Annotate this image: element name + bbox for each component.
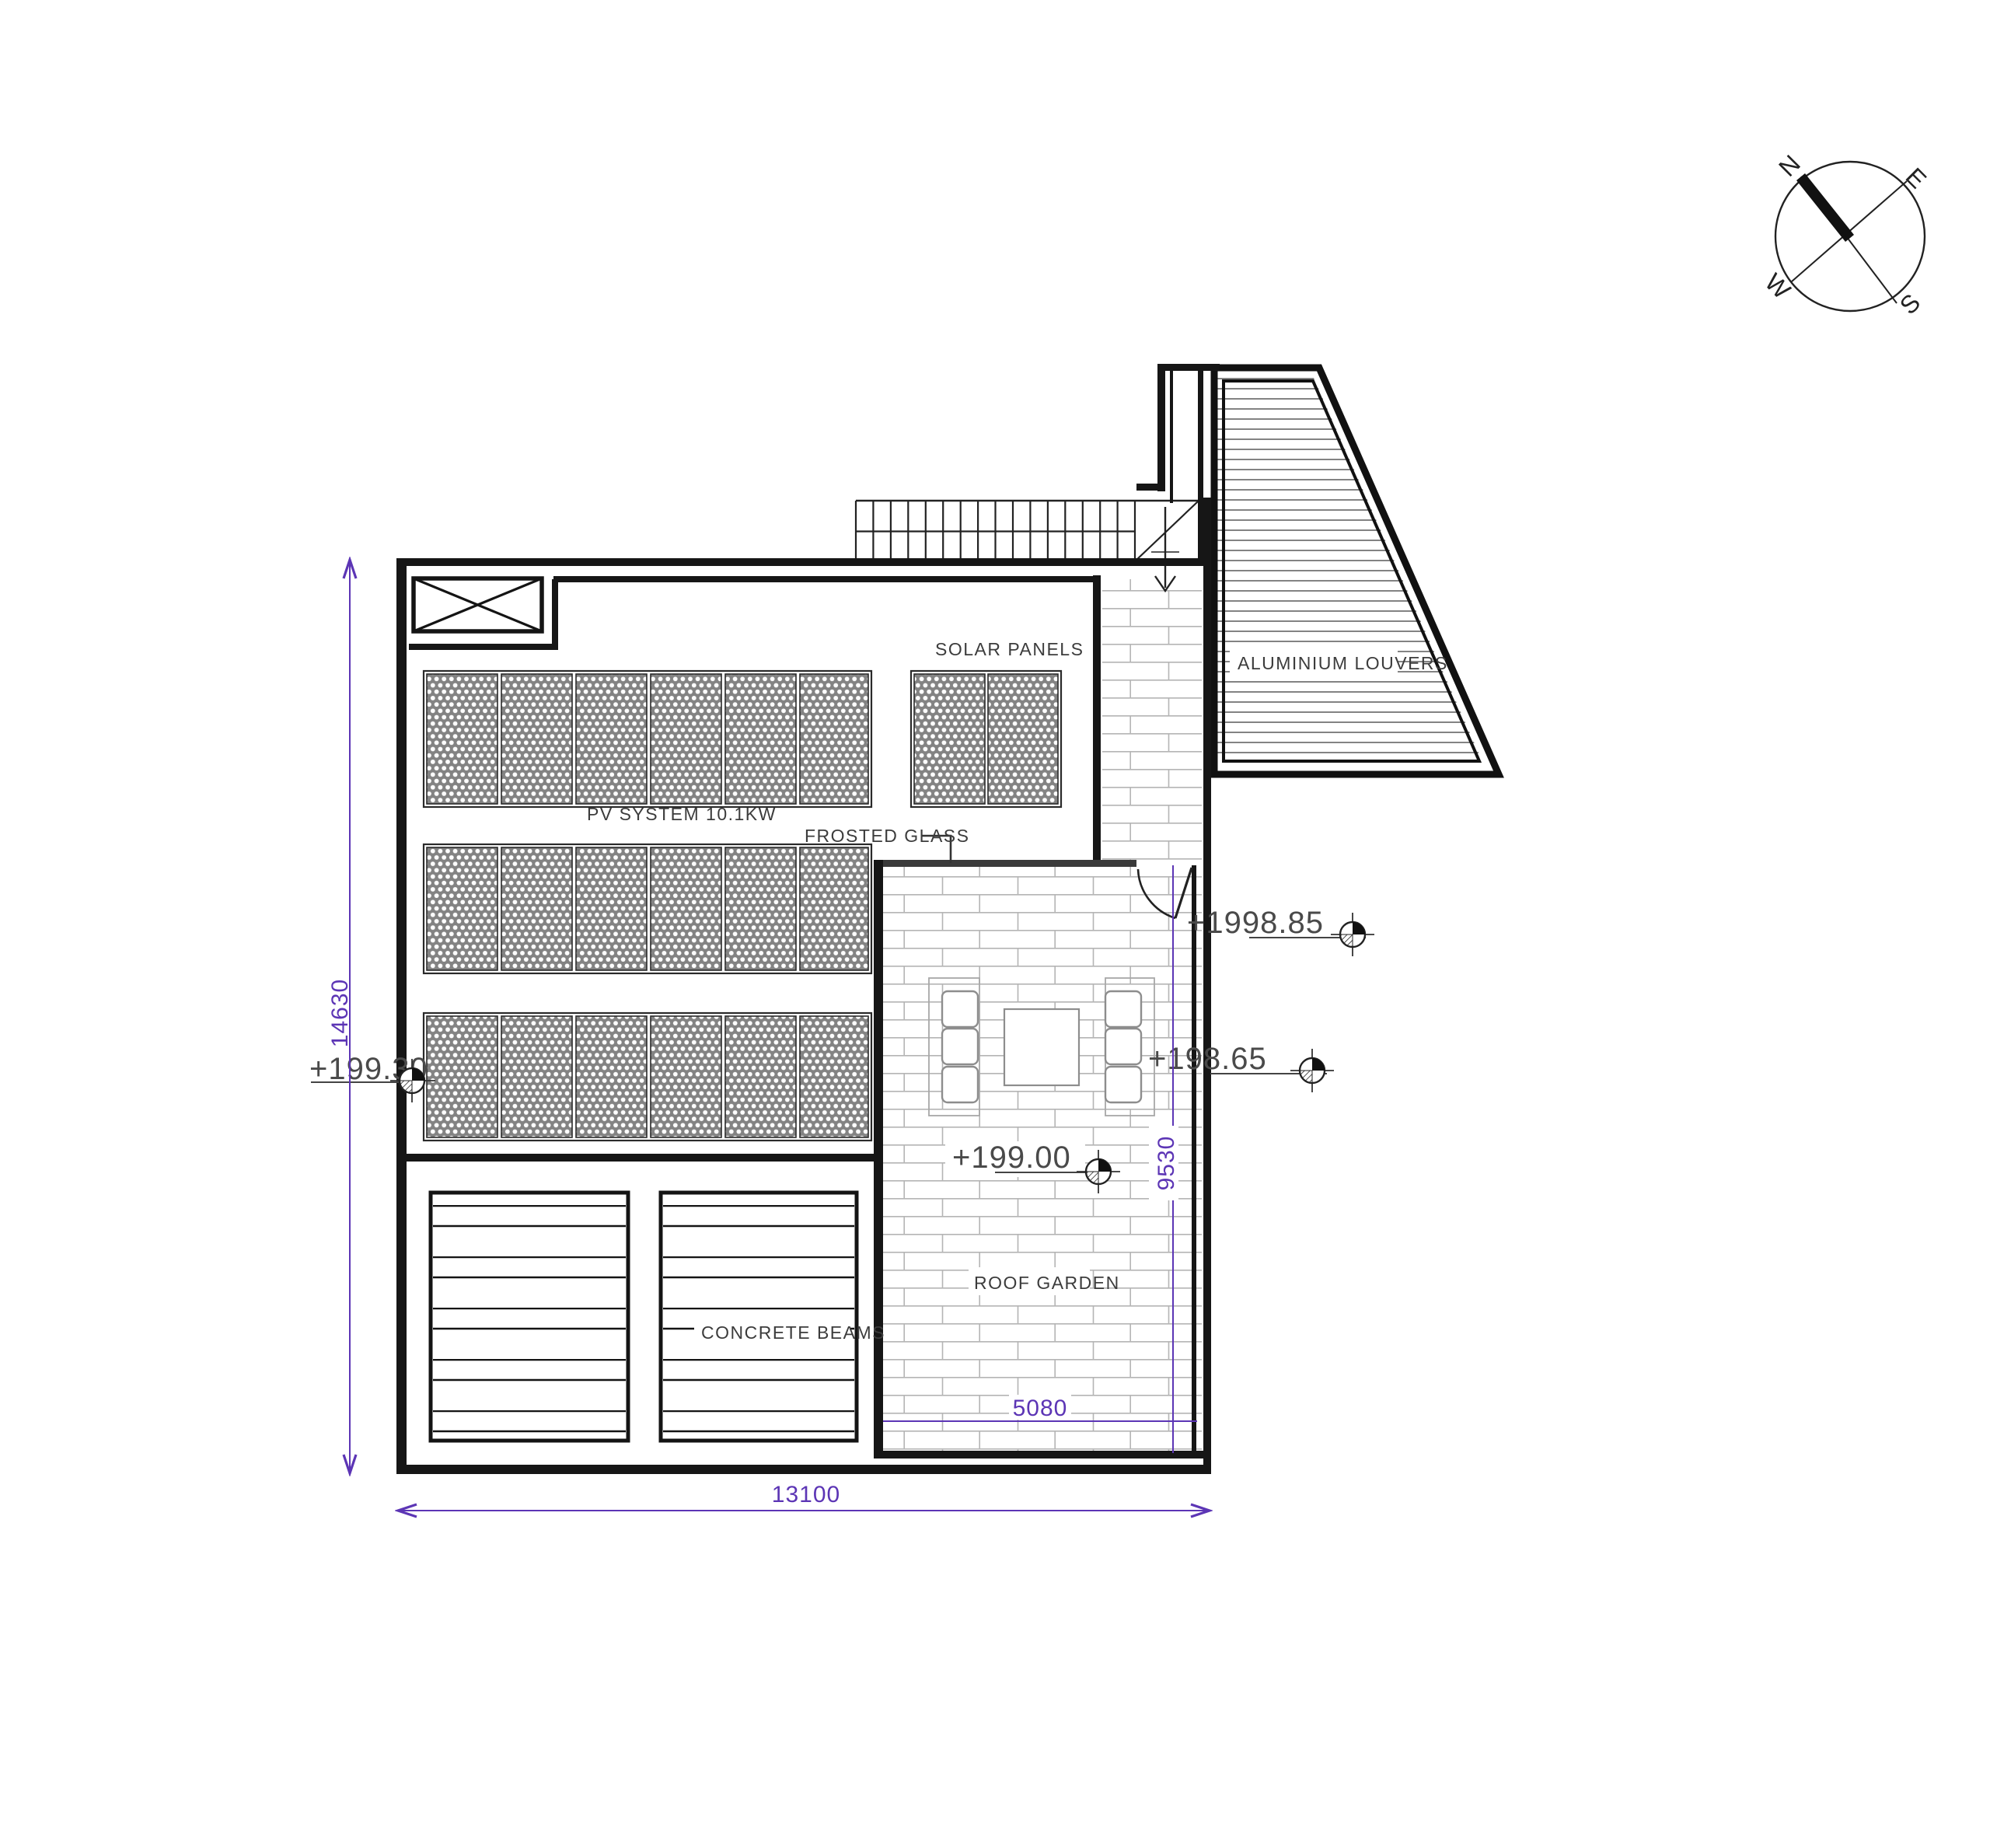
- skylight-shaft: [414, 578, 542, 631]
- elevation-marker-199-30: +199.30: [309, 1052, 435, 1102]
- wall-solar-zone-bottom: [396, 1154, 880, 1162]
- dim-9530-group: 9530: [1149, 1126, 1179, 1200]
- pv-system-label: PV SYSTEM 10.1KW: [587, 804, 777, 824]
- brick-corridor: [1102, 579, 1202, 865]
- compass-north-needle: [1796, 173, 1854, 242]
- wall-shaft-left-inner: [1170, 371, 1173, 503]
- dim-text-13100: 13100: [772, 1482, 840, 1507]
- aluminium-louvers-label: ALUMINIUM LOUVERS: [1238, 653, 1448, 673]
- compass-label-e: E: [1901, 162, 1932, 194]
- wall-garden-left: [874, 860, 883, 1458]
- wall-notch-vertical: [552, 579, 558, 649]
- concrete-beams: CONCRETE BEAMS: [431, 1193, 885, 1441]
- solar-panels-label: SOLAR PANELS: [935, 639, 1084, 659]
- concrete-beams-label: CONCRETE BEAMS: [701, 1322, 885, 1343]
- wall-left: [396, 558, 407, 1473]
- roof-garden-label: ROOF GARDEN: [974, 1273, 1120, 1293]
- wall-shaft-top: [1157, 364, 1220, 371]
- dim-text-9530: 9530: [1154, 1136, 1179, 1191]
- wall-garden-bottom: [874, 1451, 1210, 1458]
- floor-plan-canvas: N E W S ALUMINIUM LOUVERS: [0, 0, 1990, 1848]
- wall-right: [1203, 498, 1211, 1469]
- garden-table: [1004, 1009, 1079, 1085]
- pv-row-2: [424, 844, 871, 973]
- pv-row-3: [424, 1013, 871, 1141]
- compass-label-w: W: [1760, 268, 1796, 305]
- roof-plan-page: N E W S ALUMINIUM LOUVERS: [0, 0, 1990, 1848]
- compass-rose: N E W S: [1760, 149, 1932, 320]
- wall-shaft-left-outer: [1157, 364, 1165, 491]
- wall-shaft-step: [1136, 484, 1165, 491]
- aluminium-louvers-canopy: ALUMINIUM LOUVERS: [1214, 368, 1499, 774]
- dim-5080-group: 5080: [1009, 1395, 1071, 1421]
- dim-text-5080: 5080: [1013, 1396, 1068, 1421]
- elevation-199-00-text: +199.00: [952, 1141, 1071, 1175]
- wall-top-inner: [553, 576, 1099, 582]
- pv-row-1-pair: [911, 671, 1061, 807]
- elevation-1998-85-text: +1998.85: [1187, 906, 1324, 940]
- pv-row-1: [424, 671, 871, 807]
- wall-bottom: [396, 1465, 1211, 1474]
- dim-text-14630: 14630: [327, 979, 353, 1047]
- elevation-marker-1998-85: +1998.85: [1187, 906, 1374, 956]
- stair-down-arrow: [1155, 507, 1175, 591]
- wall-corridor-left: [1093, 575, 1101, 867]
- wall-notch-horizontal: [409, 644, 558, 650]
- frosted-glass-label: FROSTED GLASS: [805, 826, 969, 846]
- elevation-198-65-text: +198.65: [1148, 1042, 1267, 1076]
- wall-garden-right-inner: [1192, 865, 1196, 1455]
- wall-top: [396, 558, 1211, 566]
- wall-shaft-right-inner: [1198, 371, 1203, 558]
